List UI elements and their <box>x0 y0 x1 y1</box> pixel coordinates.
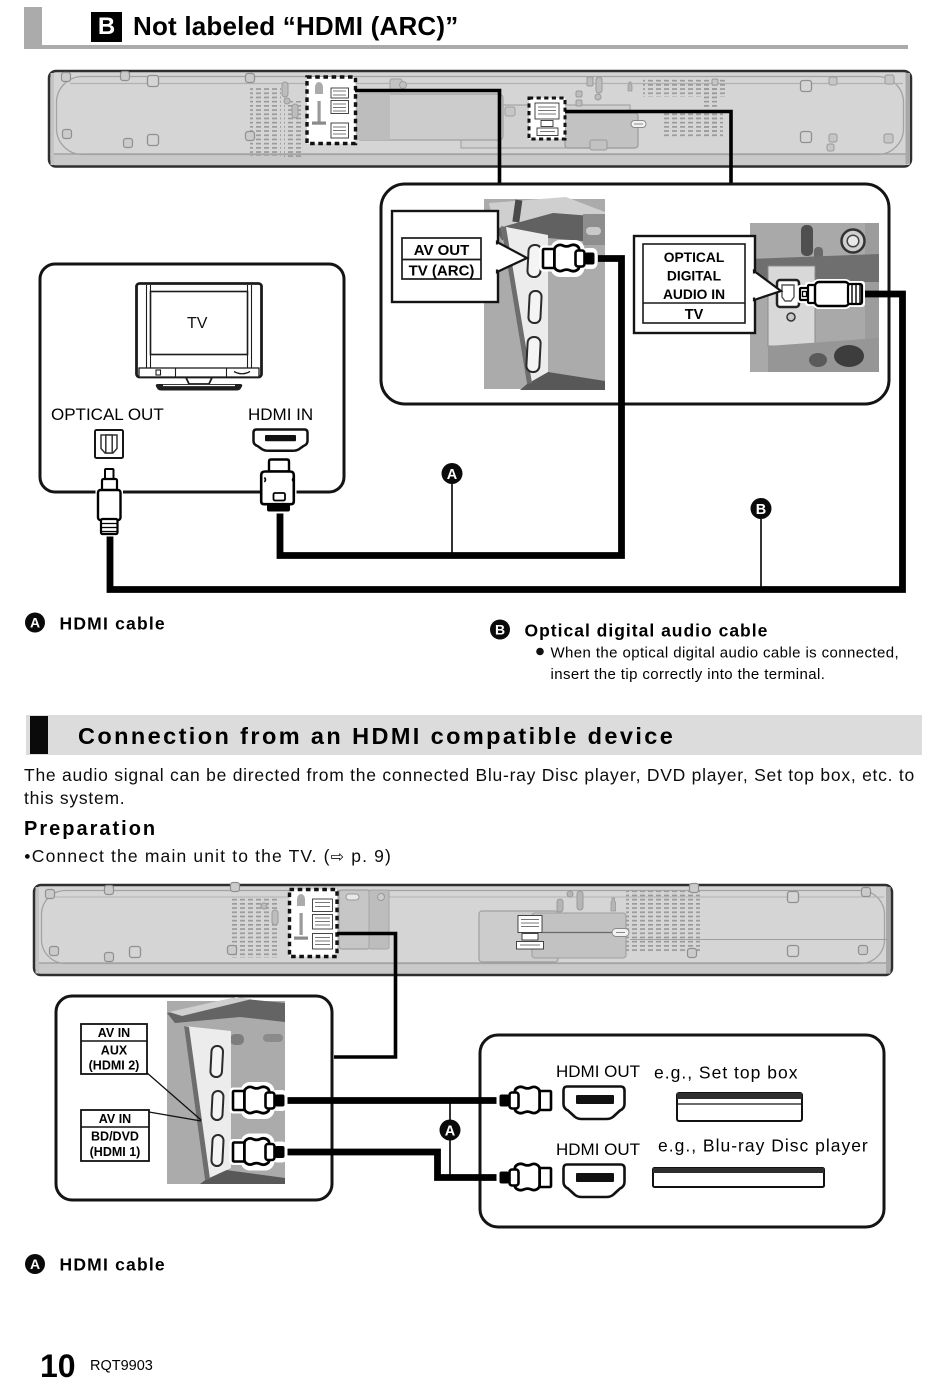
svg-text:e.g., Blu-ray Disc player: e.g., Blu-ray Disc player <box>658 1136 869 1156</box>
svg-text:(HDMI 1): (HDMI 1) <box>90 1145 141 1159</box>
svg-text:e.g., Set top box: e.g., Set top box <box>654 1063 798 1083</box>
svg-text:HDMI cable: HDMI cable <box>60 614 166 634</box>
svg-text:OPTICAL: OPTICAL <box>664 250 725 265</box>
svg-text:When the optical digital audio: When the optical digital audio cable is … <box>551 645 900 662</box>
svg-text:(HDMI 2): (HDMI 2) <box>89 1059 140 1073</box>
svg-text:HDMI IN: HDMI IN <box>248 405 313 424</box>
svg-text:TV: TV <box>685 307 704 323</box>
svg-text:B: B <box>756 502 766 518</box>
svg-text:HDMI OUT: HDMI OUT <box>556 1140 640 1159</box>
svg-text:A: A <box>447 467 458 483</box>
svg-text:OPTICAL OUT: OPTICAL OUT <box>51 405 164 424</box>
svg-text:A: A <box>30 615 40 631</box>
svg-text:AV IN: AV IN <box>98 1026 130 1040</box>
svg-text:insert the tip correctly into: insert the tip correctly into the termin… <box>551 666 826 683</box>
svg-text:AV OUT: AV OUT <box>414 242 470 259</box>
svg-text:AUX: AUX <box>101 1044 128 1058</box>
svg-text:HDMI OUT: HDMI OUT <box>556 1062 640 1081</box>
svg-text:A: A <box>30 1256 40 1272</box>
svg-text:AV IN: AV IN <box>99 1112 131 1126</box>
svg-text:BD/DVD: BD/DVD <box>91 1130 139 1144</box>
svg-text:Optical digital audio cable: Optical digital audio cable <box>525 621 769 641</box>
svg-text:DIGITAL: DIGITAL <box>667 269 721 284</box>
svg-text:TV (ARC): TV (ARC) <box>409 263 475 280</box>
svg-text:B: B <box>495 622 505 638</box>
svg-text:TV: TV <box>187 315 208 332</box>
svg-text:AUDIO IN: AUDIO IN <box>663 287 725 302</box>
svg-text:A: A <box>445 1124 456 1140</box>
svg-text:HDMI cable: HDMI cable <box>60 1255 166 1275</box>
